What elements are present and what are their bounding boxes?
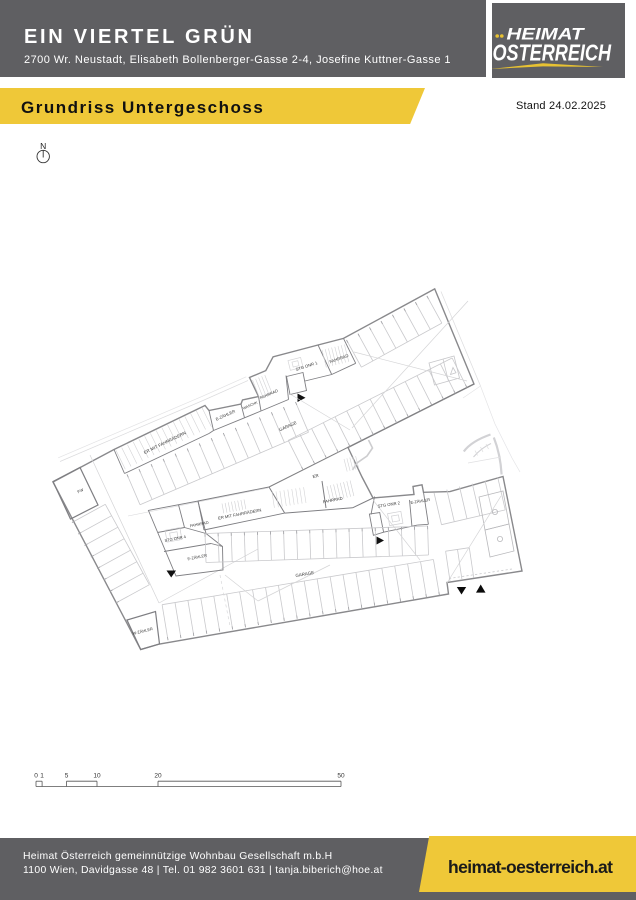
svg-text:20: 20 [154,773,162,780]
svg-text:5: 5 [65,773,69,780]
svg-text:10: 10 [93,773,101,780]
svg-text:50: 50 [337,773,345,780]
svg-text:1: 1 [40,773,44,780]
svg-text:0: 0 [34,773,38,780]
svg-text:N: N [40,141,46,151]
